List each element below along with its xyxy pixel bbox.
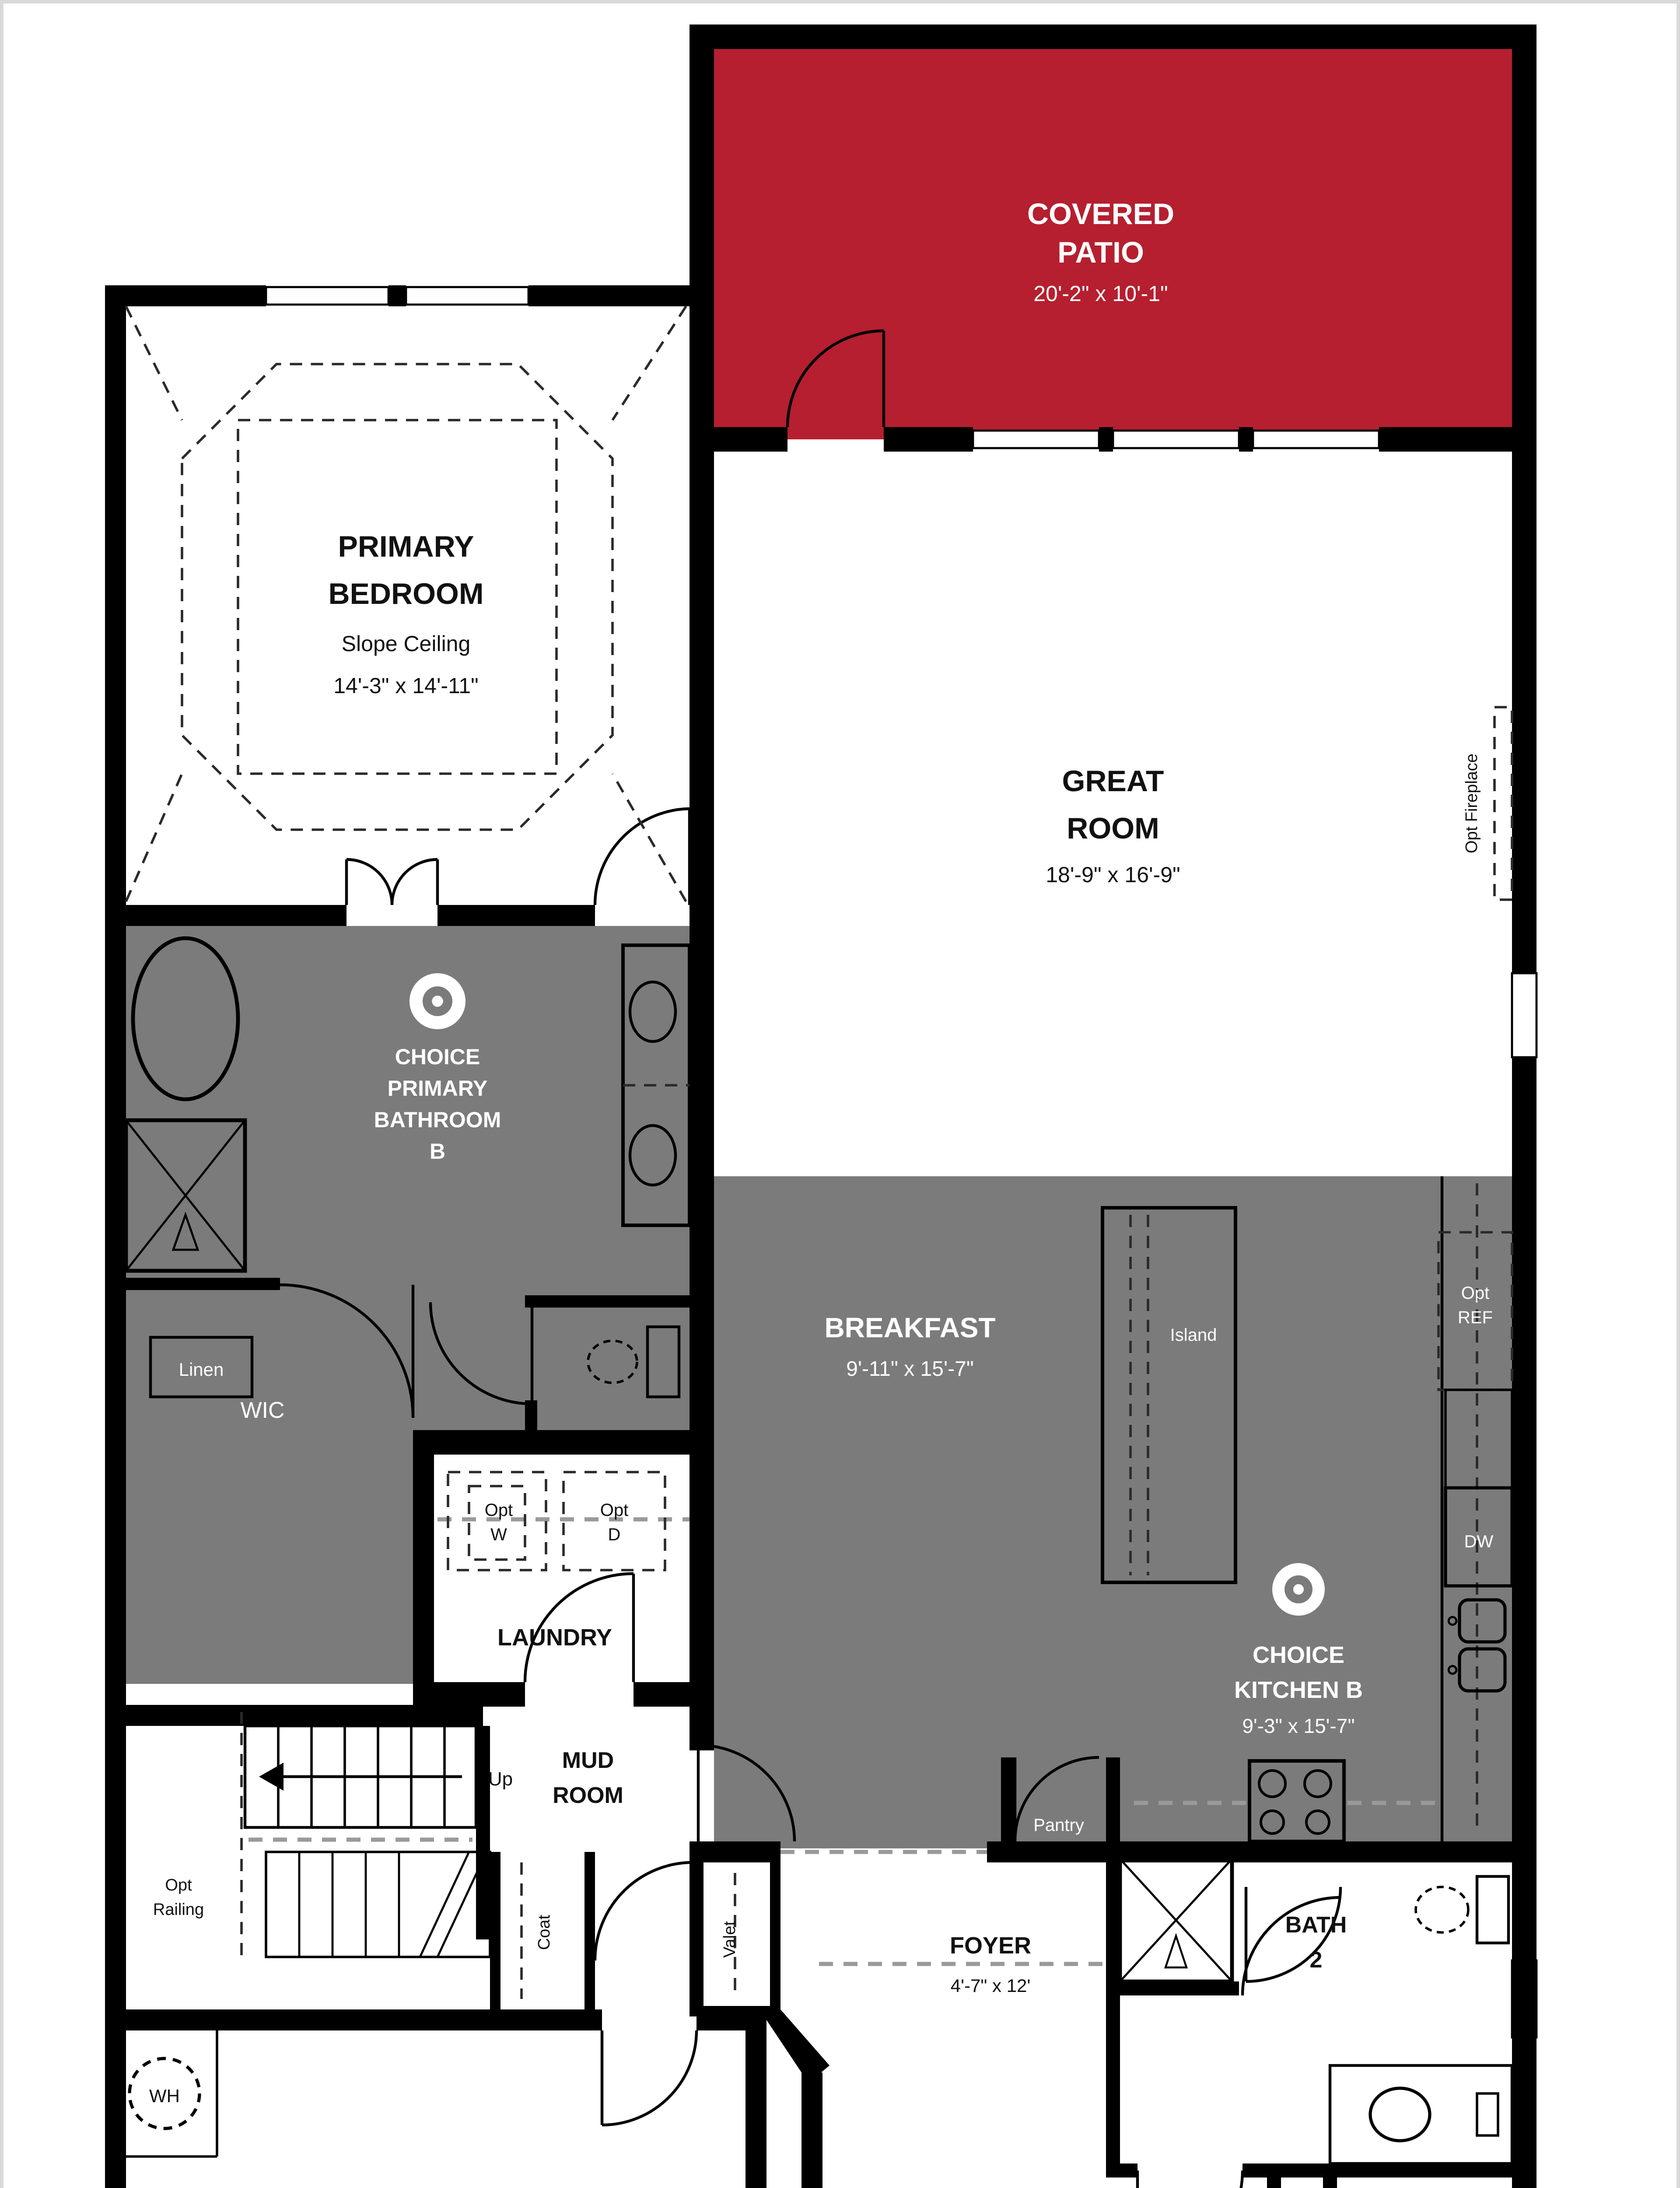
opt-washer-inner (469, 1486, 525, 1560)
wall (689, 1841, 703, 2016)
coat-label: Coat (535, 1914, 553, 1950)
closet-door-arc (595, 1862, 693, 1960)
laundry-label: LAUNDRY (497, 1624, 612, 1651)
wall (1242, 2163, 1267, 2177)
up-label: Up (488, 1768, 513, 1790)
wall (105, 1705, 483, 1726)
wall (884, 427, 973, 452)
great-room-title-1: GREAT (1062, 764, 1164, 798)
bath-2: BATH 2 (1106, 1848, 1536, 2188)
ceiling-corner (126, 306, 182, 420)
wall (1106, 1757, 1120, 1848)
wall (689, 452, 714, 922)
patio-title-2: PATIO (1057, 236, 1144, 269)
patio-dims: 20'-2" x 10'-1" (1033, 281, 1168, 306)
primary-bedroom-title-1: PRIMARY (338, 530, 474, 563)
wall (1379, 427, 1536, 452)
wall (689, 922, 714, 1750)
kitchen-l1: CHOICE (1253, 1642, 1344, 1668)
wall (1323, 2170, 1337, 2188)
wall (1001, 1757, 1015, 1848)
wh-label: WH (149, 2086, 180, 2106)
wall (1512, 25, 1536, 452)
wic-label: WIC (240, 1398, 284, 1423)
wall (413, 1682, 525, 1707)
mudroom-2: ROOM (553, 1783, 623, 1808)
floor-plan-page: COVERED PATIO 20'-2" x 10'-1" PRIMARY BE… (0, 0, 1680, 2188)
wall (1267, 2163, 1512, 2177)
window (973, 431, 1099, 448)
wall (633, 1682, 696, 1707)
wall (1106, 2163, 1137, 2177)
wall (1267, 2170, 1281, 2188)
window (1113, 431, 1239, 448)
covered-patio: COVERED PATIO 20'-2" x 10'-1" (689, 25, 1536, 452)
toilet-tank (1477, 1876, 1508, 1943)
bath2-vanity (1330, 2065, 1512, 2163)
floor-plan-svg: COVERED PATIO 20'-2" x 10'-1" PRIMARY BE… (0, 0, 1680, 2188)
valet-label: Valet (721, 1921, 739, 1958)
dw-label: DW (1464, 1532, 1494, 1551)
garage-entry-arc (602, 2030, 696, 2125)
opt-railing-2: Railing (153, 1900, 204, 1919)
wall (1512, 1883, 1536, 2188)
bath-double-door-arc-right (392, 859, 437, 905)
kitchen-floor (714, 1176, 1512, 1848)
laundry: Opt W Opt D LAUNDRY (413, 1430, 696, 1707)
breakfast-kitchen: Island Opt REF DW Pantry BREAKFAST 9'-11… (689, 922, 1536, 1862)
wall (105, 922, 126, 2188)
wall (584, 1852, 595, 2009)
opt-fireplace-box (1494, 707, 1512, 900)
opt-ref-1: Opt (1461, 1283, 1489, 1303)
wall (1512, 452, 1536, 973)
hall-door-arc (1137, 2170, 1242, 2188)
wall (689, 25, 1536, 49)
wall (126, 1278, 280, 1290)
ceiling-corner (612, 306, 686, 420)
opt-w-2: W (490, 1525, 507, 1544)
breakfast-label: BREAKFAST (824, 1312, 995, 1343)
wall (987, 1841, 1536, 1862)
patio-title-1: COVERED (1027, 197, 1174, 231)
wall (105, 285, 266, 306)
linen-upper-label: Linen (179, 1359, 224, 1380)
primary-bedroom-title-2: BEDROOM (328, 577, 483, 610)
wall (1512, 1057, 1536, 1883)
wall (801, 2072, 822, 2188)
great-room-title-2: ROOM (1067, 812, 1159, 845)
foyer-dims: 4'-7" x 12' (951, 1975, 1031, 1996)
wall (1106, 1981, 1239, 1995)
primary-bedroom-detail: Slope Ceiling (342, 631, 471, 656)
wall (105, 905, 346, 926)
wall (413, 1430, 696, 1455)
wall (437, 905, 595, 926)
bath-double-door-arc-left (346, 859, 392, 905)
wall (490, 1852, 500, 2009)
angled-wall (759, 2009, 829, 2083)
garage: WH 2 CAR GARAGE 18'-4" x 20'-7" (105, 2009, 766, 2188)
primary-bedroom: PRIMARY BEDROOM Slope Ceiling 14'-3" x 1… (105, 285, 714, 926)
wall (476, 1726, 490, 1939)
opt-d-2: D (608, 1525, 621, 1544)
wall (745, 2009, 766, 2188)
ceiling-corner (126, 774, 182, 901)
primary-bathroom-l2: PRIMARY (388, 1076, 488, 1101)
opt-w-1: Opt (485, 1501, 513, 1520)
opt-d-1: Opt (600, 1501, 628, 1520)
primary-bathroom-l3: BATHROOM (374, 1108, 501, 1132)
breakfast-dims: 9'-11" x 15'-7" (846, 1357, 974, 1381)
opt-railing-1: Opt (165, 1876, 192, 1894)
primary-bathroom-l4: B (430, 1139, 445, 1164)
tub-drain (1165, 1936, 1186, 1967)
kitchen-dims: 9'-3" x 15'-7" (1242, 1715, 1354, 1737)
wall (689, 427, 787, 452)
window (266, 287, 388, 305)
foyer-label: FOYER (950, 1932, 1031, 1959)
primary-bedroom-dims: 14'-3" x 14'-11" (333, 673, 479, 698)
wall (689, 25, 714, 452)
wall (1239, 427, 1253, 452)
great-room-dims: 18'-9" x 16'-9" (1046, 863, 1180, 887)
wall (525, 1295, 689, 1308)
wall (1099, 427, 1113, 452)
hall-linen-closet: Linen (1106, 2163, 1536, 2188)
window (1512, 973, 1536, 1057)
faucet (1477, 2093, 1498, 2135)
sink (1370, 2088, 1430, 2141)
bath2-1: BATH (1285, 1912, 1347, 1938)
wall (528, 285, 689, 306)
wall (105, 2009, 602, 2030)
wall (388, 285, 406, 306)
toilet-bowl (1416, 1887, 1468, 1932)
wall (105, 285, 126, 922)
mudroom-1: MUD (562, 1748, 614, 1773)
up-arrow-head (259, 1763, 283, 1791)
opt-fireplace-label: Opt Fireplace (1463, 754, 1481, 853)
wall (1106, 1848, 1120, 2177)
pantry-label: Pantry (1033, 1816, 1084, 1835)
island-label: Island (1170, 1325, 1217, 1345)
primary-bathroom-l1: CHOICE (395, 1045, 480, 1069)
wall (413, 1430, 434, 1707)
wall (770, 1862, 780, 2016)
choice-bathroom-bullseye-icon (409, 973, 465, 1029)
window (1253, 431, 1379, 448)
bath2-2: 2 (1310, 1947, 1323, 1973)
window (406, 287, 528, 305)
opt-ref-2: REF (1458, 1308, 1493, 1327)
kitchen-l2: KITCHEN B (1234, 1677, 1363, 1703)
choice-kitchen-bullseye-icon (1272, 1563, 1325, 1616)
